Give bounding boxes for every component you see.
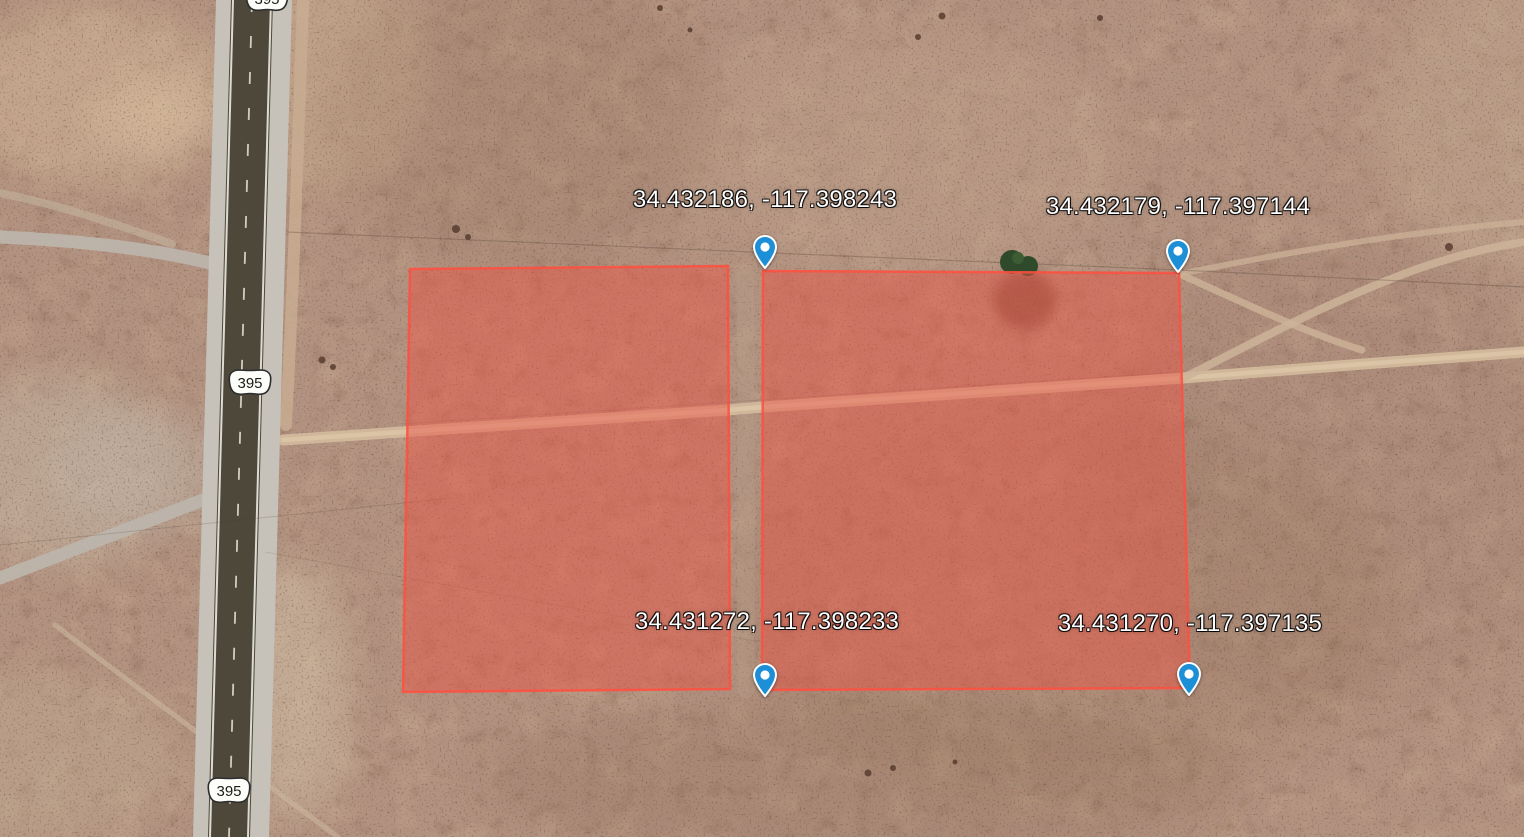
map-pin-bottom-right[interactable] xyxy=(1176,662,1202,696)
map-pin-top-right[interactable] xyxy=(1165,239,1191,273)
route-shield-top: 395 xyxy=(245,0,289,12)
map-pin-bottom-left[interactable] xyxy=(752,663,778,697)
pin-icon xyxy=(752,663,778,697)
route-shield-label: 395 xyxy=(245,0,289,13)
pin-icon xyxy=(1165,239,1191,273)
parcel-overlays xyxy=(403,266,1190,692)
parcel-east[interactable] xyxy=(762,271,1190,690)
route-shield-label: 395 xyxy=(228,369,272,397)
route-shield-label: 395 xyxy=(207,777,251,805)
route-shield-middle: 395 xyxy=(228,368,272,396)
route-shield-bottom: 395 xyxy=(207,776,251,804)
satellite-map-canvas[interactable]: 395 395 395 34.432186, -117.398243 34.43… xyxy=(0,0,1524,837)
pin-icon xyxy=(1176,662,1202,696)
map-pin-top-left[interactable] xyxy=(752,235,778,269)
parcel-west[interactable] xyxy=(403,266,730,692)
satellite-imagery xyxy=(0,0,1524,837)
pin-icon xyxy=(752,235,778,269)
